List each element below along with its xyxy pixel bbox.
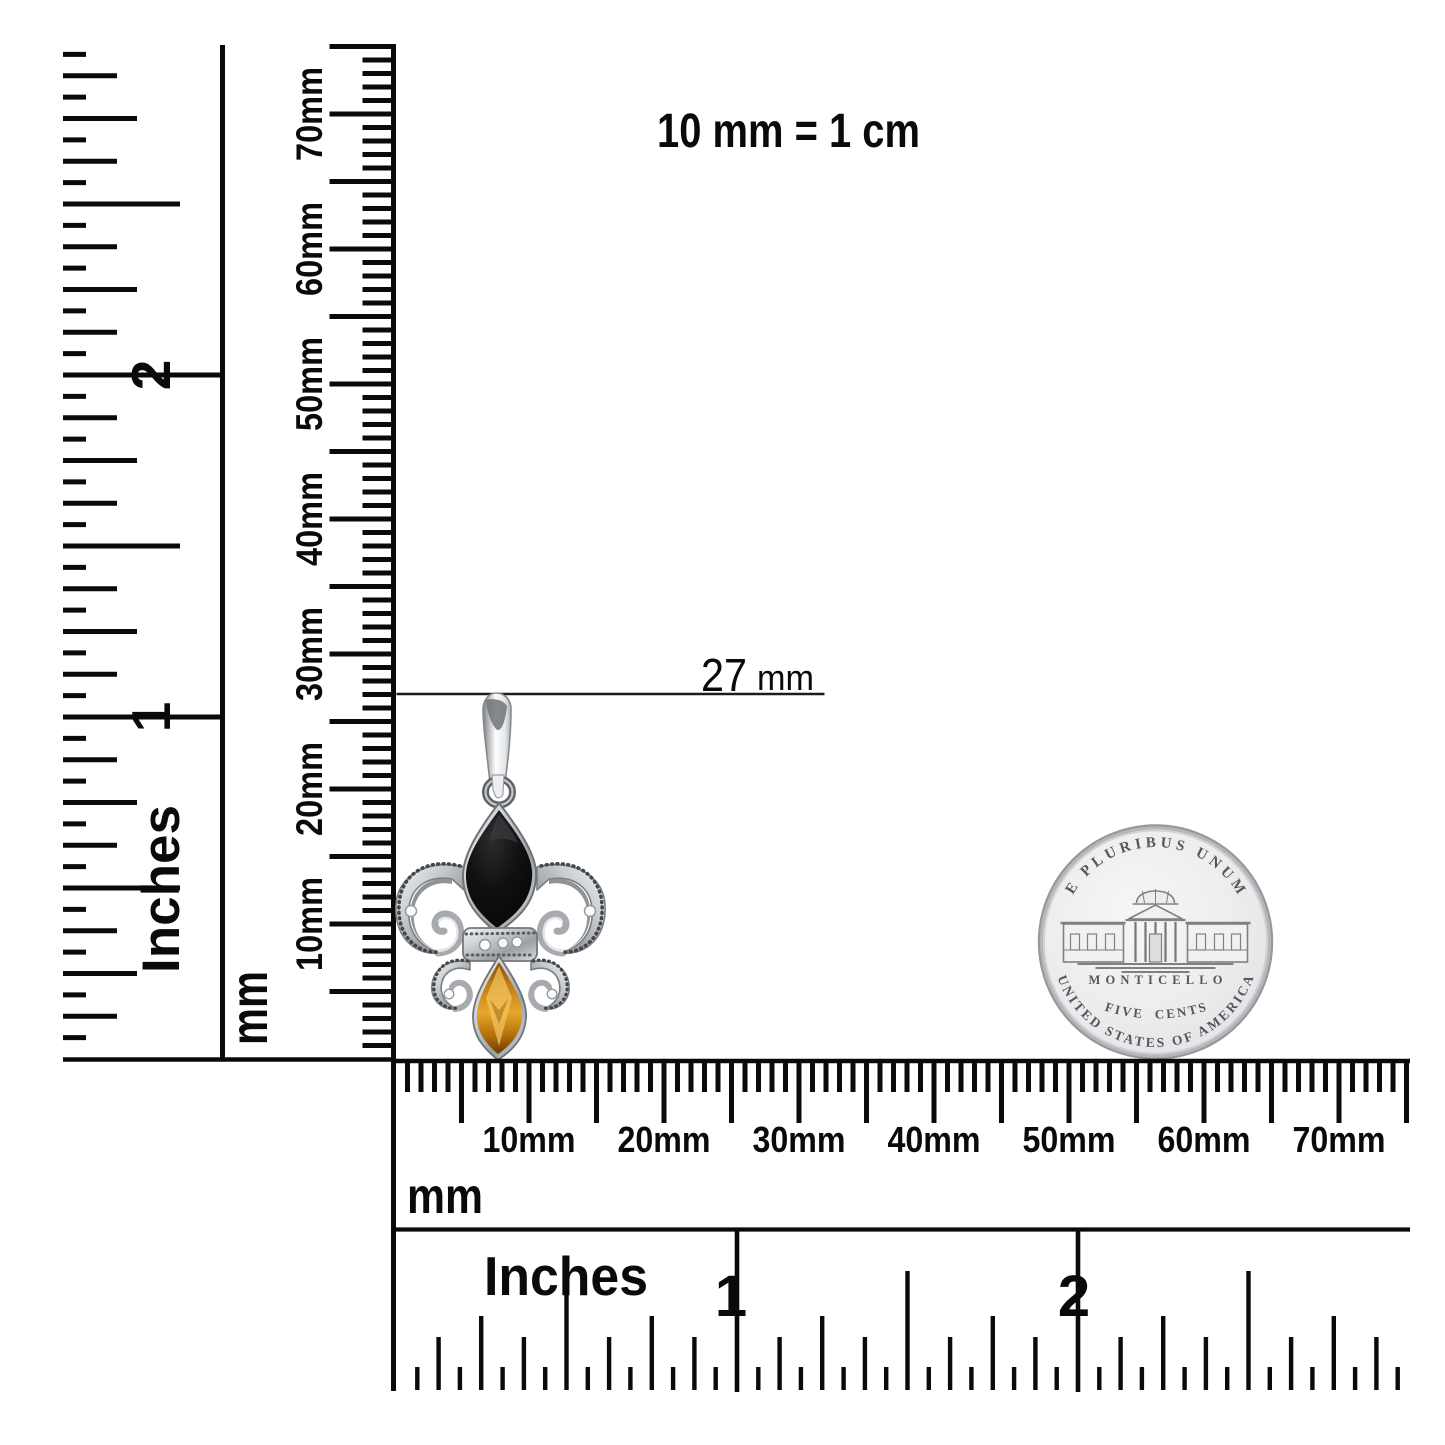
svg-text:10mm: 10mm [483,1119,576,1160]
svg-text:70mm: 70mm [289,67,330,161]
svg-text:40mm: 40mm [888,1119,981,1160]
svg-text:1: 1 [120,702,182,733]
svg-text:60mm: 60mm [1158,1119,1251,1160]
svg-text:mm: mm [757,657,814,698]
svg-text:1: 1 [715,1264,747,1329]
svg-text:10mm: 10mm [289,877,330,971]
svg-text:20mm: 20mm [618,1119,711,1160]
svg-text:mm: mm [407,1168,483,1224]
svg-text:Inches: Inches [484,1245,648,1307]
svg-text:2: 2 [120,360,182,391]
svg-text:50mm: 50mm [289,337,330,431]
svg-text:70mm: 70mm [1293,1119,1386,1160]
svg-text:60mm: 60mm [289,202,330,296]
svg-text:27: 27 [701,649,747,701]
svg-text:40mm: 40mm [289,472,330,566]
svg-text:30mm: 30mm [289,607,330,701]
svg-text:30mm: 30mm [753,1119,846,1160]
svg-text:2: 2 [1058,1264,1090,1329]
svg-text:Inches: Inches [132,805,191,973]
svg-text:mm: mm [221,971,279,1045]
svg-text:50mm: 50mm [1023,1119,1116,1160]
svg-text:20mm: 20mm [289,742,330,836]
svg-text:10 mm = 1 cm: 10 mm = 1 cm [657,105,920,158]
